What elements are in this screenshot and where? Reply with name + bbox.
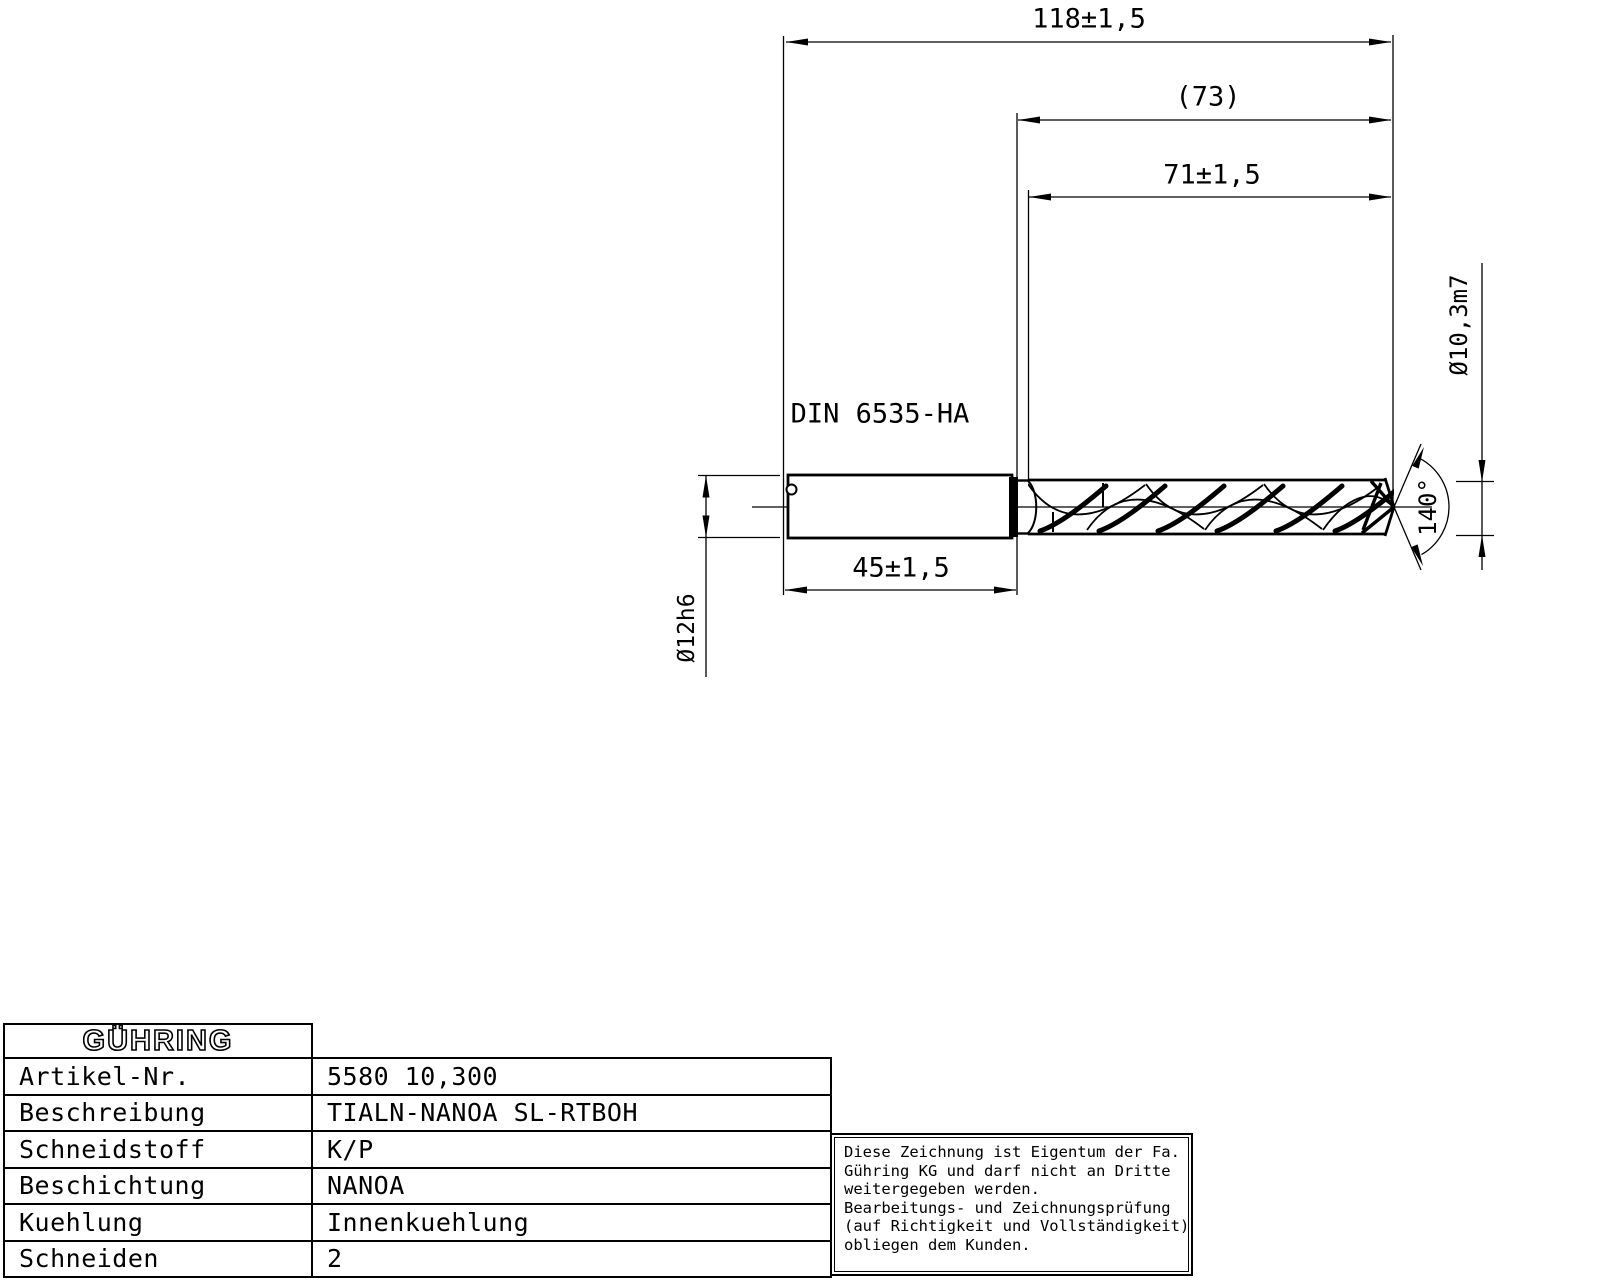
row-label: Artikel-Nr. bbox=[5, 1059, 313, 1094]
table-row: Beschichtung NANOA bbox=[5, 1169, 830, 1206]
table-row: Beschreibung TIALN-NANOA SL-RTBOH bbox=[5, 1096, 830, 1133]
dimension-lines bbox=[698, 35, 1494, 677]
note-line: obliegen dem Kunden. bbox=[844, 1236, 1188, 1255]
dim-ref-length-label: (73) bbox=[1175, 82, 1240, 113]
row-value: Innenkuehlung bbox=[313, 1205, 830, 1240]
dim-overall-length-label: 118±1,5 bbox=[1032, 4, 1146, 35]
table-row: Artikel-Nr. 5580 10,300 bbox=[5, 1059, 830, 1096]
row-label: Schneidstoff bbox=[5, 1132, 313, 1167]
row-value: K/P bbox=[313, 1132, 830, 1167]
technical-drawing-page: 118±1,5 (73) 71±1,5 45±1,5 DIN 6535-HA Ø… bbox=[0, 0, 1600, 1280]
ownership-note-inner: Diese Zeichnung ist Eigentum der Fa. Güh… bbox=[834, 1137, 1189, 1272]
row-value: TIALN-NANOA SL-RTBOH bbox=[313, 1096, 830, 1131]
note-line: Gühring KG und darf nicht an Dritte bbox=[844, 1162, 1188, 1181]
coolant-hole-icon bbox=[787, 485, 797, 495]
dim-flute-length-label: 71±1,5 bbox=[1163, 160, 1261, 191]
guehring-logo: GÜHRING bbox=[5, 1025, 311, 1057]
note-line: Diese Zeichnung ist Eigentum der Fa. bbox=[844, 1143, 1188, 1162]
logo-cell: GÜHRING bbox=[3, 1023, 313, 1059]
table-row: Kuehlung Innenkuehlung bbox=[5, 1205, 830, 1242]
row-label: Schneiden bbox=[5, 1242, 313, 1277]
row-label: Kuehlung bbox=[5, 1205, 313, 1240]
shank-end-bar bbox=[1009, 477, 1018, 537]
guehring-logo-text: GÜHRING bbox=[83, 1025, 234, 1057]
note-line: (auf Richtigkeit und Vollständigkeit) bbox=[844, 1217, 1188, 1236]
table-row: Schneiden 2 bbox=[5, 1242, 830, 1277]
shank-standard-label: DIN 6535-HA bbox=[791, 399, 970, 430]
info-table: Artikel-Nr. 5580 10,300 Beschreibung TIA… bbox=[3, 1057, 832, 1278]
row-label: Beschreibung bbox=[5, 1096, 313, 1131]
shank-outline bbox=[788, 475, 1012, 538]
dim-shank-diameter-label: Ø12h6 bbox=[674, 593, 700, 662]
ownership-note-box: Diese Zeichnung ist Eigentum der Fa. Güh… bbox=[830, 1133, 1193, 1276]
row-label: Beschichtung bbox=[5, 1169, 313, 1204]
spiral-flutes bbox=[1040, 486, 1401, 531]
dim-point-angle-label: 140° bbox=[1414, 478, 1442, 536]
note-line: Bearbeitungs- und Zeichnungsprüfung bbox=[844, 1199, 1188, 1218]
dim-shank-length-label: 45±1,5 bbox=[852, 553, 950, 584]
row-value: 5580 10,300 bbox=[313, 1059, 830, 1094]
row-value: 2 bbox=[313, 1242, 830, 1277]
dim-cutting-diameter-label: Ø10,3m7 bbox=[1445, 274, 1473, 375]
table-row: Schneidstoff K/P bbox=[5, 1132, 830, 1169]
note-line: weitergegeben werden. bbox=[844, 1180, 1188, 1199]
row-value: NANOA bbox=[313, 1169, 830, 1204]
